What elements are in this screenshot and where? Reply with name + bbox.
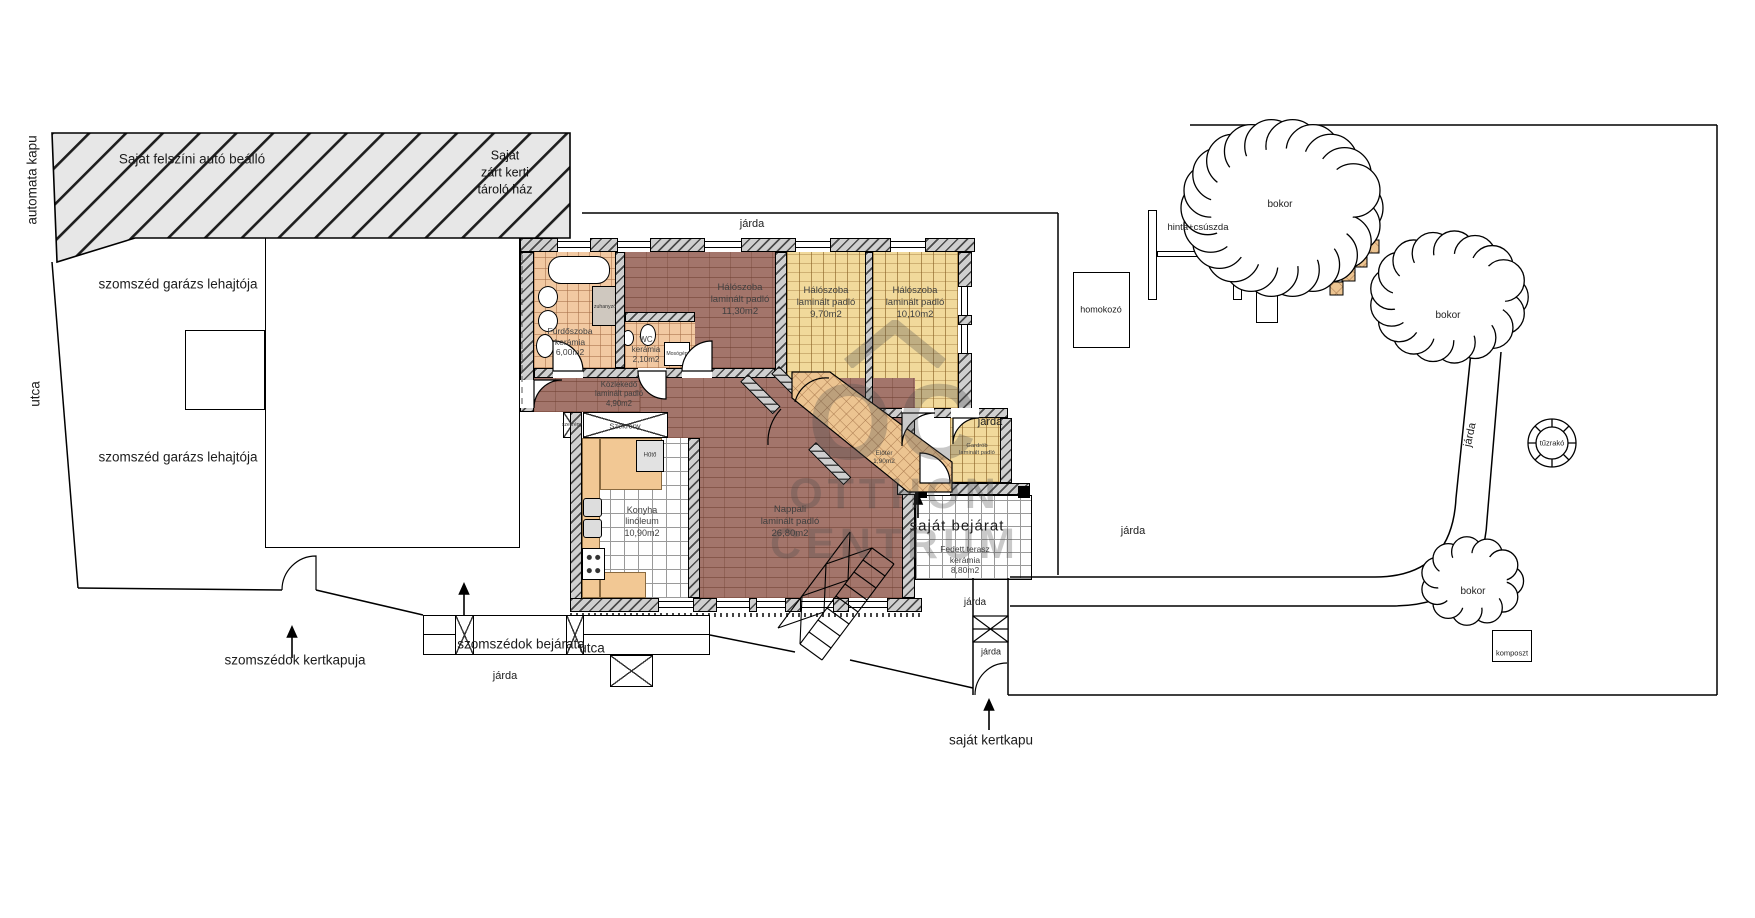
- room-area: 2,10m2: [632, 355, 660, 365]
- neighbors-entrance-label: szomszédok bejárata: [457, 637, 585, 654]
- wall: [775, 252, 787, 378]
- room-area: 26,80m2: [761, 528, 820, 540]
- room-floor: laminált padló: [711, 294, 770, 306]
- window: [658, 598, 694, 612]
- sidewalk-label: járda: [1121, 525, 1145, 539]
- swing-post: [1148, 210, 1157, 300]
- room-name: Konyha: [624, 505, 659, 516]
- terrace-column: [915, 486, 927, 498]
- fire-pit-label: tűzrakó: [1540, 438, 1565, 447]
- wardrobe-label: Szekrény: [609, 421, 640, 430]
- bathtub: [548, 256, 610, 284]
- neighbor-house: [265, 237, 520, 548]
- closet-room-label: Gardrób laminált padló: [959, 443, 995, 457]
- sink: [538, 286, 558, 308]
- window: [958, 324, 972, 354]
- room-name: Nappali: [761, 504, 820, 516]
- terrace-column: [1018, 486, 1030, 498]
- room-floor: linóleum: [624, 516, 659, 527]
- room-area: 1,90m2: [873, 458, 895, 466]
- swing-bar: [1157, 251, 1233, 257]
- bush-label: bokor: [1435, 310, 1460, 323]
- door-gap: [553, 368, 583, 378]
- window: [795, 238, 831, 252]
- wall: [865, 252, 873, 408]
- carport-label: Saját felszíni autó beálló: [119, 152, 265, 169]
- window: [704, 238, 742, 252]
- own-gate-label: saját kertkapu: [949, 733, 1033, 750]
- room-area: 9,70m2: [797, 309, 856, 321]
- room-name: Hálószoba: [711, 282, 770, 294]
- fridge-label: Hűtő: [644, 452, 657, 460]
- stove: [582, 548, 605, 580]
- wall: [615, 252, 625, 368]
- room-name: Fedett terasz: [940, 544, 990, 555]
- site-plan: OC OTTHON CENTRUM automata kapu Saját fe…: [0, 0, 1755, 918]
- room-floor: laminált padló: [886, 297, 945, 309]
- slide-platform: [1240, 210, 1282, 252]
- living-room-label: Nappali laminált padló 26,80m2: [761, 504, 820, 540]
- fence-rail: [423, 634, 455, 635]
- room-name: Közlekedő: [595, 380, 643, 389]
- sidewalk-label: járda: [978, 416, 1002, 430]
- room-floor: kerámia: [548, 337, 593, 348]
- room-name: Előtér: [873, 450, 895, 458]
- room-area: 6,00m2: [548, 347, 593, 358]
- door-gap: [520, 380, 534, 408]
- room-area: 4,90m2: [595, 399, 643, 408]
- room-floor: kerámia: [632, 345, 660, 355]
- room-name: Gardrób: [959, 443, 995, 450]
- window: [557, 238, 591, 252]
- terrace-label: Fedett terasz kerámia 8,80m2: [940, 544, 990, 576]
- room-name: Hálószoba: [886, 285, 945, 297]
- sidewalk-label: járda: [740, 218, 764, 232]
- room-floor: laminált padló: [595, 389, 643, 398]
- hall-label: Közlekedő laminált padló 4,90m2: [595, 380, 643, 408]
- kitchen-sink: [583, 519, 602, 538]
- door-gap: [638, 368, 666, 378]
- storage-line2: zárt kerti: [478, 165, 533, 182]
- wall: [688, 438, 700, 598]
- storage-line3: tároló ház: [478, 181, 533, 198]
- room-area: 10,90m2: [624, 528, 659, 539]
- wc-label: WC kerámia 2,10m2: [632, 335, 660, 365]
- window: [800, 598, 834, 612]
- neighbors-gate: [282, 556, 316, 590]
- storage-house-label: Saját zárt kerti tároló ház: [478, 148, 533, 199]
- street-label-left: utca: [28, 381, 45, 407]
- neighbors-gate-label: szomszédok kertkapuja: [224, 653, 365, 670]
- room-area: 8,80m2: [940, 565, 990, 576]
- room-floor: laminált padló: [959, 450, 995, 457]
- bedroom3-label: Hálószoba laminált padló 10,10m2: [886, 285, 945, 321]
- room-name: Hálószoba: [797, 285, 856, 297]
- slide: [1256, 252, 1278, 323]
- wall: [570, 412, 582, 612]
- door-gap: [902, 408, 934, 418]
- neighbor-garage-door: [185, 330, 265, 410]
- window: [958, 286, 972, 316]
- washing-machine-label: Mosógép: [666, 351, 687, 358]
- room-name: WC: [632, 335, 660, 345]
- bush-label: bokor: [1460, 586, 1485, 599]
- room-floor: laminált padló: [761, 516, 820, 528]
- fence-rail: [584, 634, 710, 635]
- wall: [902, 418, 915, 598]
- sidewalk-label: járda: [493, 670, 517, 684]
- door-gap: [682, 368, 712, 378]
- sidewalk-label: járda: [1462, 422, 1481, 449]
- own-entrance-label: saját bejárat: [910, 518, 1005, 537]
- neighbor-ramp-label: szomszéd garázs lehajtója: [98, 277, 257, 294]
- shower-label: zuhanyzó: [594, 304, 616, 311]
- room-floor: kerámia: [940, 555, 990, 566]
- sandbox-label: homokozó: [1080, 304, 1122, 315]
- swing-slide-label: hinta+csúszda: [1168, 222, 1229, 234]
- window: [756, 598, 786, 612]
- storage-line1: Saját: [478, 148, 533, 165]
- bedroom2-label: Hálószoba laminált padló 9,70m2: [797, 285, 856, 321]
- window: [716, 598, 750, 612]
- sidewalk-label: járda: [964, 597, 986, 610]
- bedroom1-label: Hálószoba laminált padló 11,30m2: [711, 282, 770, 318]
- window: [848, 598, 888, 612]
- garden-path: [1010, 352, 1501, 606]
- automatic-gate-label: automata kapu: [25, 135, 42, 224]
- sidewalk-label: járda: [981, 646, 1001, 657]
- door-gap: [951, 408, 979, 418]
- room-area: 11,30m2: [711, 306, 770, 318]
- bathroom-label: Fürdőszoba kerámia 6,00m2: [548, 326, 593, 358]
- window: [617, 238, 651, 252]
- room-area: 10,10m2: [886, 309, 945, 321]
- kitchen-counter-bottom: [600, 572, 646, 598]
- wall: [625, 312, 695, 322]
- wardrobe-small-label: szekrény: [562, 422, 582, 428]
- compost-label: komposzt: [1496, 648, 1528, 657]
- neighbor-ramp-label: szomszéd garázs lehajtója: [98, 450, 257, 467]
- garden-steps: [1330, 240, 1379, 295]
- entry-label: Előtér 1,90m2: [873, 450, 895, 466]
- kitchen-sink: [583, 498, 602, 517]
- window: [890, 238, 926, 252]
- room-name: Fürdőszoba: [548, 326, 593, 337]
- bush-icons: [1181, 120, 1528, 626]
- bush-label: bokor: [1267, 199, 1292, 212]
- kitchen-label: Konyha linóleum 10,90m2: [624, 505, 659, 539]
- fence-x: [610, 655, 653, 687]
- room-floor: laminált padló: [797, 297, 856, 309]
